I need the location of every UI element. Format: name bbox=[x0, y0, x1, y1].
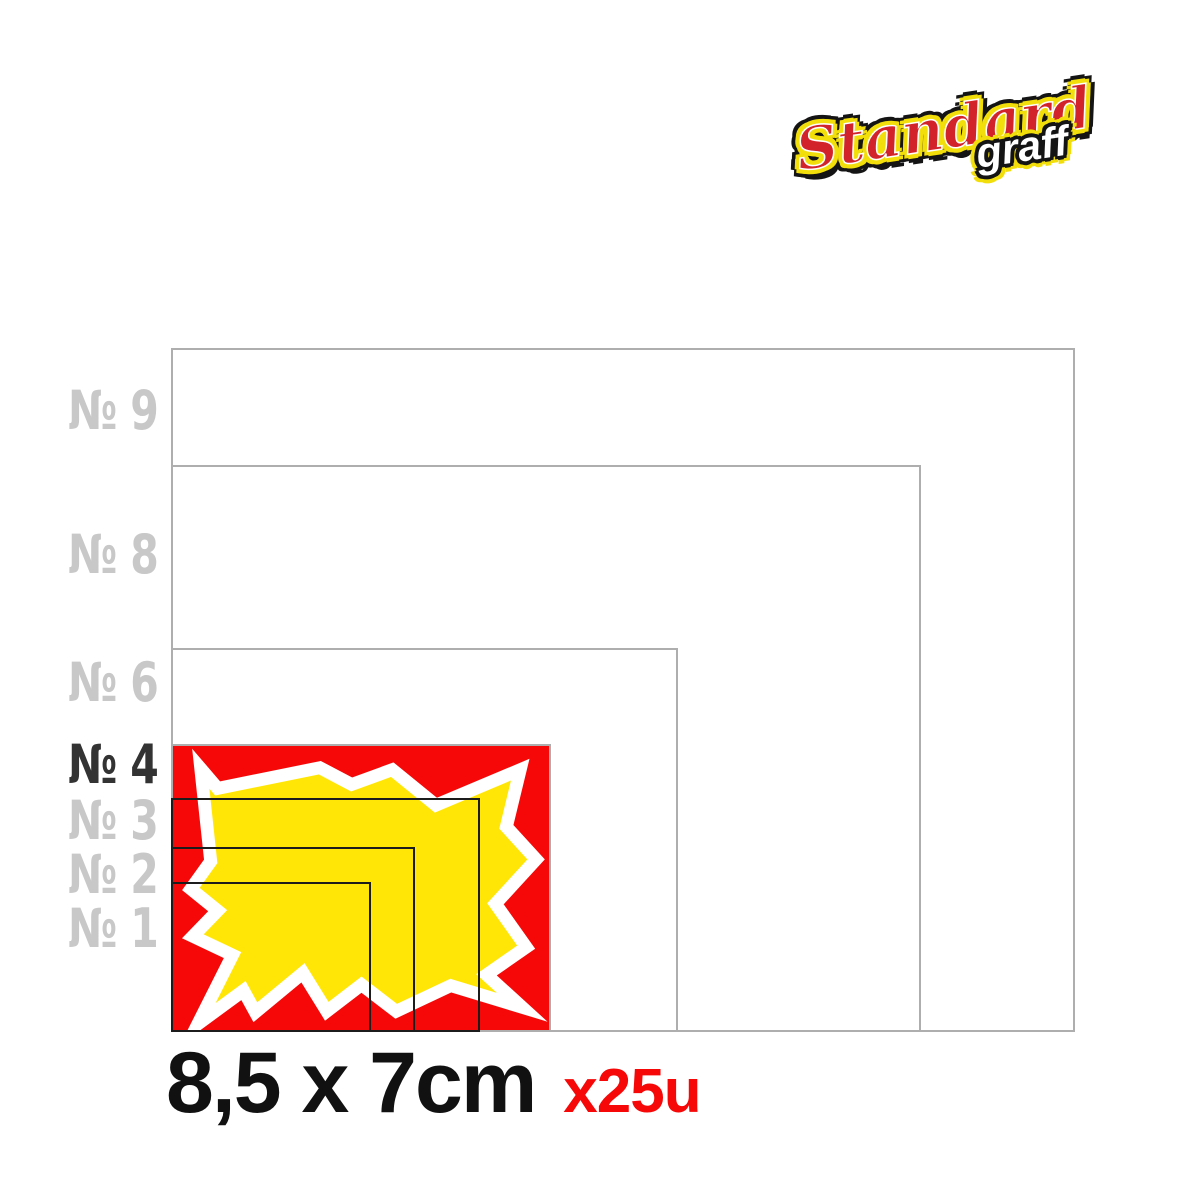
size-label-8: № 8 bbox=[38, 528, 158, 582]
dimensions-text: 8,5 x 7cm bbox=[166, 1040, 535, 1126]
size-label-6: № 6 bbox=[38, 656, 158, 710]
size-rect-1 bbox=[171, 882, 371, 1032]
size-label-1: № 1 bbox=[38, 902, 158, 956]
size-caption: 8,5 x 7cm x25u bbox=[166, 1040, 701, 1126]
size-label-2: № 2 bbox=[38, 848, 158, 902]
size-label-9: № 9 bbox=[38, 384, 158, 438]
product-size-chart: Standard graff № 9 № 8 № 6 № 4 № 3 № 2 №… bbox=[0, 0, 1200, 1200]
quantity-text: x25u bbox=[563, 1061, 700, 1123]
size-label-3: № 3 bbox=[38, 794, 158, 848]
size-label-4-highlighted: № 4 bbox=[38, 738, 158, 792]
brand-logo: Standard graff bbox=[792, 78, 1101, 201]
brand-logo-secondary-text: graff bbox=[973, 120, 1071, 175]
